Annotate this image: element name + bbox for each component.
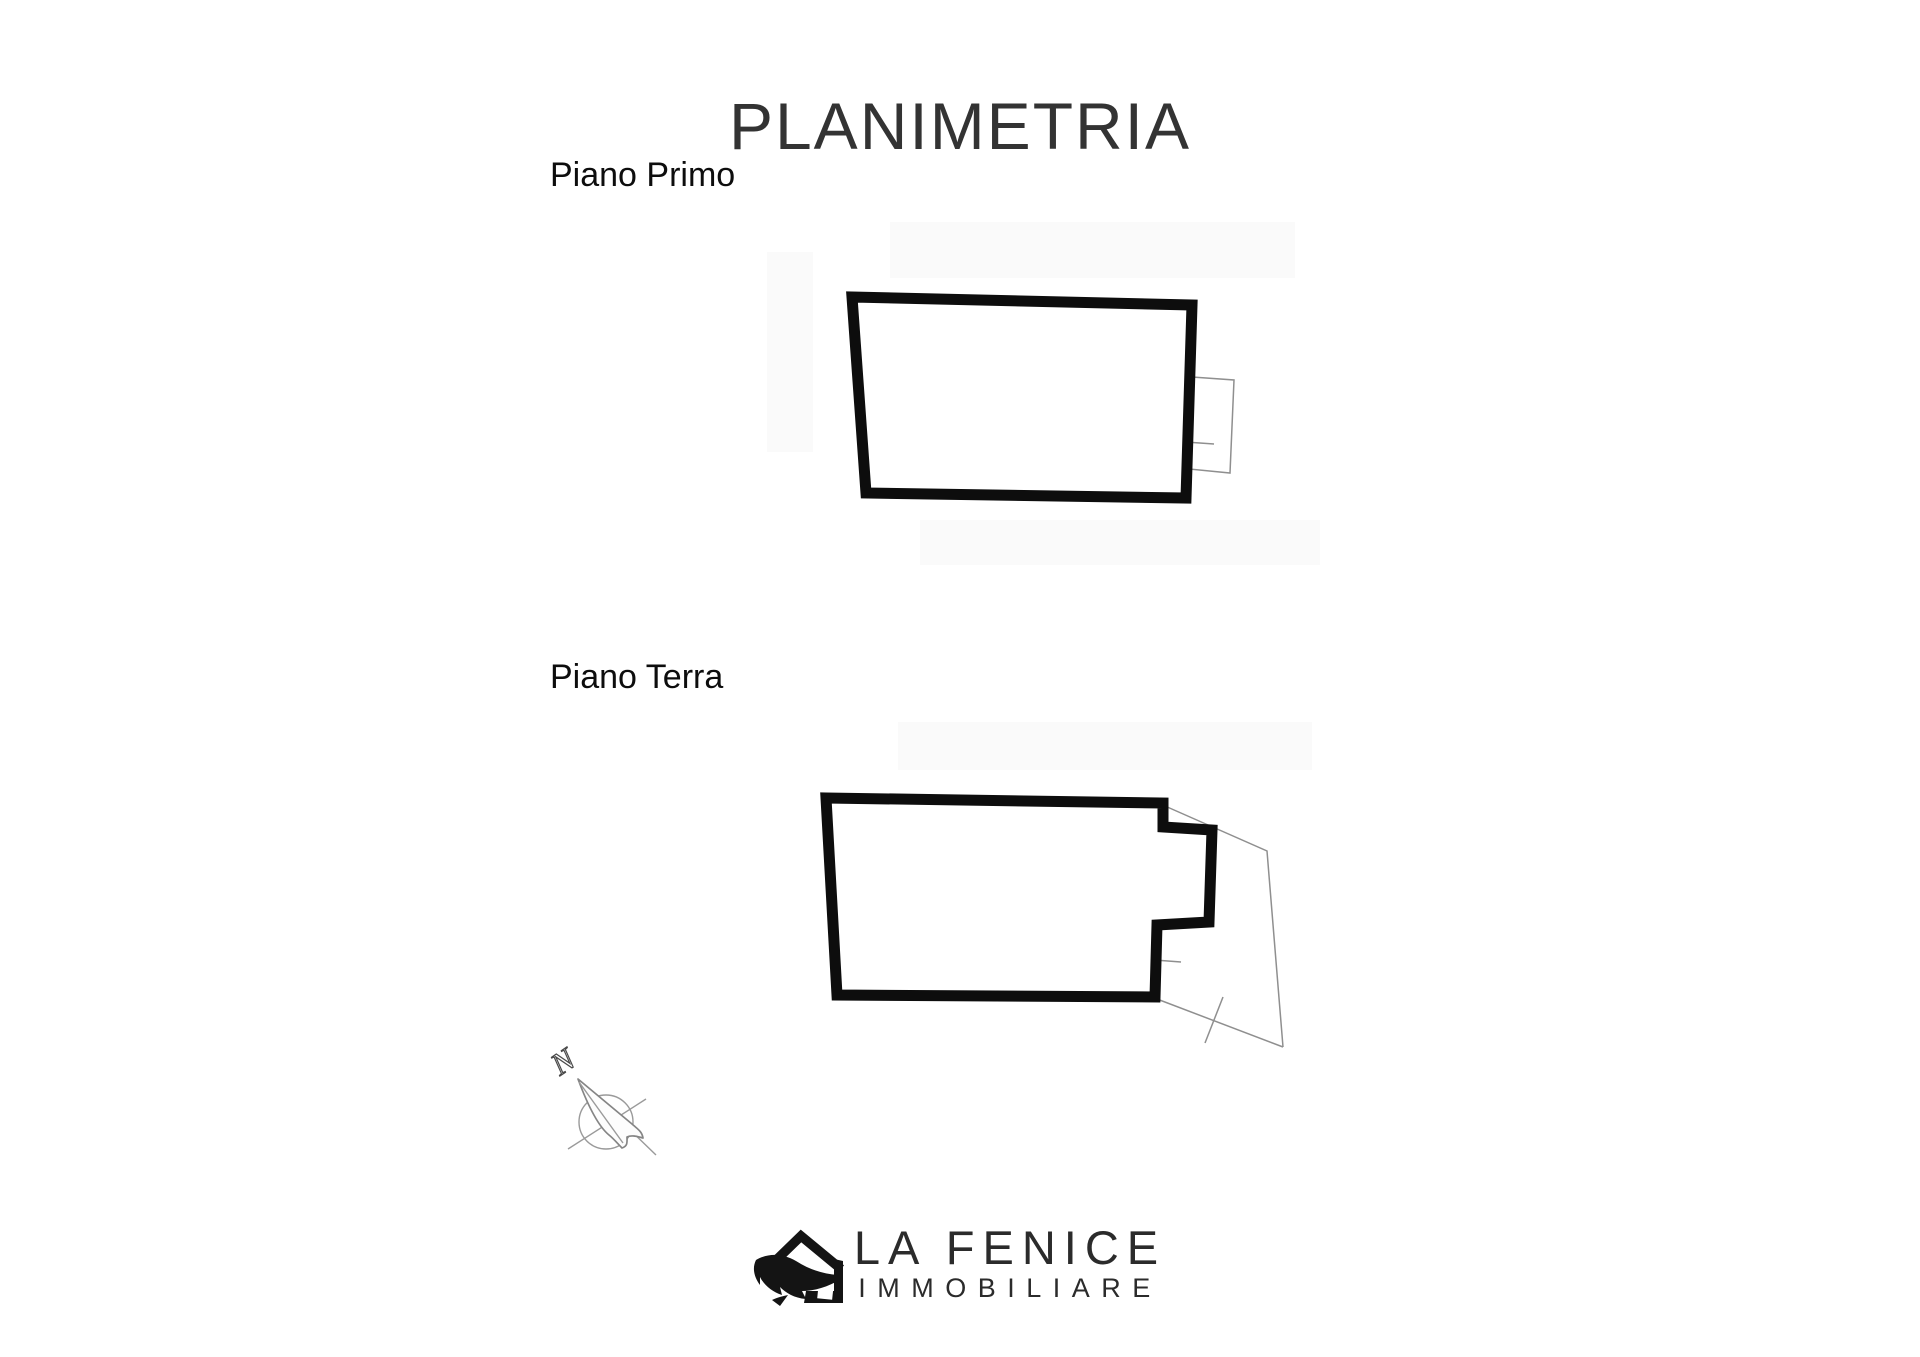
logo-name: LA FENICE xyxy=(853,1221,1167,1275)
north-label: N xyxy=(544,1040,583,1082)
balcony-outline xyxy=(1189,377,1234,473)
scan-artifact xyxy=(920,520,1320,565)
ground-floor-walls xyxy=(826,798,1212,997)
scan-artifact xyxy=(767,252,813,452)
first-floor-walls xyxy=(852,297,1192,498)
logo-subtitle: IMMOBILIARE xyxy=(853,1275,1167,1302)
floor-plan-drawing: N xyxy=(0,0,1920,1357)
planimetry-page: PLANIMETRIA Piano Primo Piano Terra xyxy=(0,0,1920,1357)
scan-artifact xyxy=(890,222,1295,278)
company-logo: LA FENICE IMMOBILIARE xyxy=(853,1221,1167,1302)
house-wing-icon xyxy=(754,1236,843,1306)
north-arrow-icon xyxy=(578,1079,643,1148)
first-floor-plan xyxy=(852,297,1234,498)
measure-tick xyxy=(1205,997,1223,1043)
phoenix-feather-icon xyxy=(772,1295,788,1306)
ground-floor-plan xyxy=(826,798,1283,1047)
scan-artifact xyxy=(898,722,1312,770)
compass: N xyxy=(544,1040,656,1155)
